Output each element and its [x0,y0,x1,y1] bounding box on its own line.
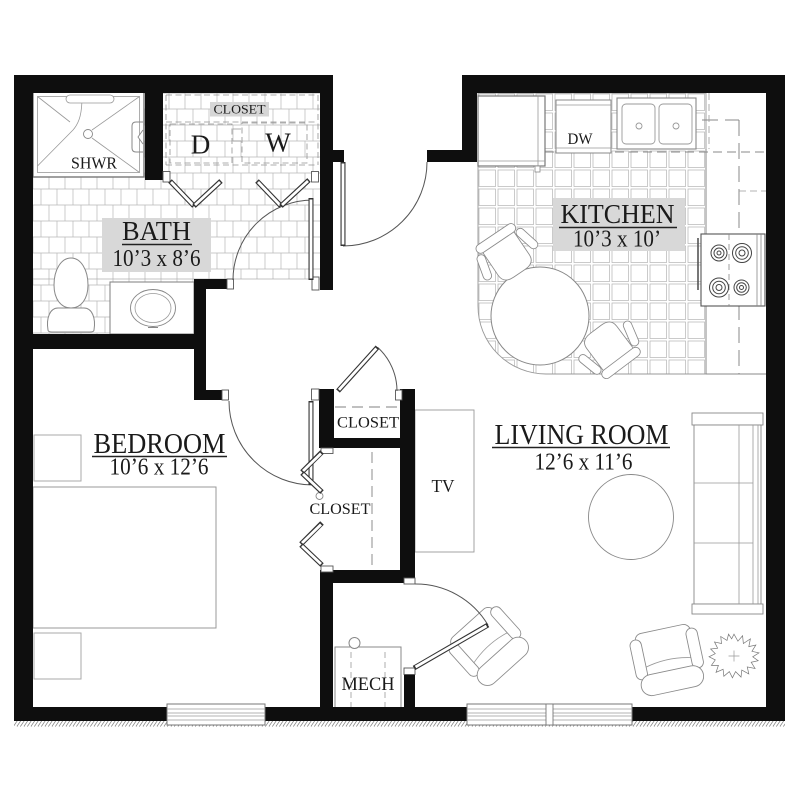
svg-text:CLOSET: CLOSET [214,102,266,117]
svg-text:W: W [265,128,291,158]
svg-text:KITCHEN: KITCHEN [561,199,675,229]
svg-text:BATH: BATH [122,216,191,246]
svg-text:10’6 x 12’6: 10’6 x 12’6 [110,455,209,481]
svg-text:10’3 x 10’: 10’3 x 10’ [573,227,661,253]
svg-text:12’6 x 11’6: 12’6 x 11’6 [535,450,633,476]
svg-text:MECH: MECH [342,674,395,695]
svg-text:LIVING ROOM: LIVING ROOM [495,419,669,451]
svg-text:CLOSET: CLOSET [337,415,400,432]
svg-text:TV: TV [432,476,455,496]
svg-text:SHWR: SHWR [71,154,117,173]
svg-text:10’3 x 8’6: 10’3 x 8’6 [113,246,201,272]
svg-text:CLOSET: CLOSET [310,501,372,518]
svg-text:DW: DW [568,131,594,148]
svg-text:D: D [191,130,211,160]
